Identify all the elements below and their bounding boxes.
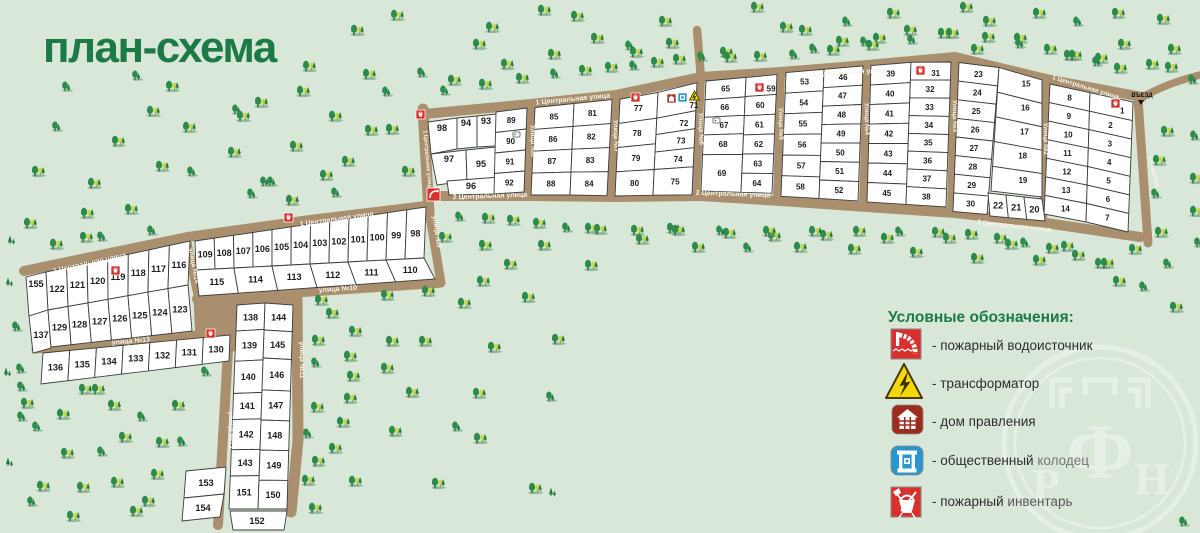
svg-text:48: 48: [837, 111, 846, 120]
svg-text:58: 58: [796, 183, 805, 192]
svg-text:37: 37: [922, 175, 931, 184]
svg-text:45: 45: [882, 189, 891, 198]
svg-text:73: 73: [677, 137, 686, 146]
svg-text:14: 14: [1061, 205, 1070, 214]
svg-text:155: 155: [28, 279, 43, 289]
svg-text:2: 2: [1108, 121, 1113, 130]
svg-text:152: 152: [249, 516, 264, 526]
svg-text:147: 147: [268, 401, 283, 411]
svg-text:99: 99: [391, 231, 401, 241]
svg-text:51: 51: [835, 167, 844, 176]
svg-text:69: 69: [717, 169, 726, 178]
svg-text:142: 142: [239, 430, 254, 440]
svg-text:129: 129: [52, 322, 67, 332]
svg-text:103: 103: [312, 238, 327, 248]
svg-text:121: 121: [70, 280, 85, 290]
svg-text:план-схема: план-схема: [43, 23, 278, 72]
svg-text:3: 3: [1108, 140, 1113, 149]
svg-text:123: 123: [172, 305, 187, 315]
svg-text:54: 54: [799, 98, 808, 107]
svg-text:Улица №8: Улица №8: [528, 125, 536, 158]
svg-text:137: 137: [33, 330, 48, 340]
svg-text:92: 92: [505, 178, 514, 187]
svg-text:улица №11: улица №11: [298, 342, 305, 379]
svg-text:104: 104: [293, 240, 308, 250]
svg-text:150: 150: [265, 490, 280, 500]
svg-text:61: 61: [755, 121, 764, 130]
svg-text:67: 67: [720, 121, 729, 130]
svg-text:- пожарный инвентарь: - пожарный инвентарь: [932, 494, 1072, 509]
svg-text:41: 41: [885, 110, 894, 119]
svg-text:улица №12: улица №12: [227, 411, 234, 448]
svg-text:Н: Н: [1134, 453, 1170, 504]
svg-text:29: 29: [967, 181, 976, 190]
svg-text:77: 77: [634, 104, 643, 113]
svg-text:111: 111: [364, 267, 378, 277]
svg-text:66: 66: [720, 103, 729, 112]
svg-text:ВЪЕЗД: ВЪЕЗД: [1131, 93, 1153, 99]
svg-text:15: 15: [1022, 80, 1031, 89]
svg-text:122: 122: [49, 284, 64, 294]
svg-text:97: 97: [444, 154, 454, 164]
svg-text:34: 34: [924, 121, 933, 130]
svg-text:55: 55: [798, 119, 807, 128]
svg-text:139: 139: [242, 341, 257, 351]
svg-text:4: 4: [1107, 158, 1112, 167]
svg-text:100: 100: [370, 232, 385, 242]
svg-text:117: 117: [151, 264, 166, 274]
svg-text:149: 149: [266, 461, 281, 471]
svg-text:106: 106: [255, 244, 270, 254]
svg-text:125: 125: [132, 311, 147, 321]
svg-text:Улица №6: Улица №6: [696, 113, 704, 146]
svg-text:114: 114: [248, 275, 264, 285]
svg-text:140: 140: [241, 372, 256, 382]
svg-text:133: 133: [128, 354, 143, 364]
svg-text:90: 90: [506, 137, 515, 146]
svg-text:21: 21: [1011, 203, 1021, 213]
svg-text:65: 65: [721, 85, 730, 94]
svg-text:7: 7: [1105, 214, 1110, 223]
svg-text:28: 28: [968, 163, 977, 172]
svg-text:82: 82: [587, 133, 596, 142]
svg-text:132: 132: [155, 351, 170, 361]
svg-text:52: 52: [834, 186, 843, 195]
svg-text:81: 81: [588, 109, 597, 118]
svg-text:6: 6: [1106, 195, 1111, 204]
svg-text:151: 151: [237, 488, 252, 498]
svg-text:17: 17: [1020, 128, 1029, 137]
svg-text:- пожарный водоисточник: - пожарный водоисточник: [932, 338, 1093, 353]
svg-text:24: 24: [973, 89, 982, 98]
svg-text:113: 113: [287, 272, 302, 282]
svg-text:138: 138: [243, 312, 258, 322]
svg-text:88: 88: [547, 180, 556, 189]
svg-text:72: 72: [679, 119, 688, 128]
svg-text:134: 134: [101, 356, 117, 366]
svg-text:13: 13: [1062, 186, 1071, 195]
svg-text:12: 12: [1062, 168, 1071, 177]
svg-text:60: 60: [756, 101, 765, 110]
svg-text:Ф: Ф: [1067, 408, 1134, 495]
svg-text:136: 136: [48, 362, 63, 372]
svg-text:49: 49: [837, 129, 846, 138]
svg-text:102: 102: [331, 236, 346, 246]
svg-text:108: 108: [217, 248, 232, 258]
svg-text:Улица №2: Улица №2: [1042, 123, 1050, 156]
svg-text:- трансформатор: - трансформатор: [932, 376, 1039, 391]
svg-text:Улица №3: Улица №3: [951, 100, 959, 133]
svg-text:38: 38: [922, 193, 931, 202]
svg-text:130: 130: [208, 345, 223, 355]
svg-text:101: 101: [351, 234, 366, 244]
svg-text:87: 87: [548, 157, 557, 166]
svg-text:146: 146: [269, 370, 284, 380]
svg-text:84: 84: [585, 179, 594, 188]
svg-text:153: 153: [198, 478, 213, 488]
svg-text:25: 25: [972, 107, 981, 116]
svg-text:115: 115: [209, 277, 224, 287]
svg-text:43: 43: [884, 149, 893, 158]
svg-text:96: 96: [466, 181, 476, 191]
svg-text:94: 94: [461, 118, 472, 128]
svg-text:- дом правления: - дом правления: [932, 414, 1036, 429]
svg-text:Улица №5: Улица №5: [777, 108, 785, 141]
svg-text:95: 95: [476, 159, 486, 169]
svg-text:93: 93: [481, 116, 491, 126]
svg-text:98: 98: [437, 123, 447, 133]
svg-text:44: 44: [883, 169, 892, 178]
svg-text:74: 74: [674, 155, 683, 164]
svg-text:50: 50: [836, 148, 845, 157]
svg-text:78: 78: [633, 129, 642, 138]
svg-text:8: 8: [1067, 93, 1072, 102]
svg-text:40: 40: [886, 90, 895, 99]
svg-text:27: 27: [969, 144, 978, 153]
svg-text:112: 112: [325, 270, 340, 280]
svg-text:10: 10: [1064, 131, 1073, 140]
svg-text:Улица №7: Улица №7: [611, 120, 619, 153]
svg-text:5: 5: [1106, 177, 1111, 186]
svg-text:110: 110: [403, 265, 418, 275]
svg-text:Улица №4: Улица №4: [863, 103, 871, 136]
svg-text:109: 109: [198, 250, 213, 260]
svg-text:20: 20: [1029, 204, 1039, 214]
svg-text:127: 127: [92, 316, 107, 326]
svg-text:16: 16: [1021, 104, 1030, 113]
svg-text:91: 91: [505, 158, 514, 167]
svg-text:22: 22: [993, 201, 1003, 211]
svg-text:105: 105: [274, 242, 289, 252]
svg-text:42: 42: [884, 129, 893, 138]
svg-text:53: 53: [800, 77, 809, 86]
svg-text:9: 9: [1067, 112, 1072, 121]
svg-text:26: 26: [971, 126, 980, 135]
svg-text:80: 80: [630, 179, 639, 188]
svg-text:33: 33: [925, 103, 934, 112]
svg-text:79: 79: [631, 154, 640, 163]
svg-text:131: 131: [182, 348, 197, 358]
svg-text:31: 31: [931, 69, 940, 78]
svg-text:36: 36: [923, 157, 932, 166]
svg-text:145: 145: [270, 340, 285, 350]
svg-text:154: 154: [195, 503, 211, 513]
svg-text:32: 32: [926, 85, 935, 94]
svg-text:47: 47: [838, 92, 847, 101]
svg-text:59: 59: [767, 85, 776, 94]
svg-text:148: 148: [267, 431, 282, 441]
svg-text:120: 120: [90, 276, 105, 286]
svg-text:56: 56: [798, 141, 807, 150]
svg-text:19: 19: [1018, 176, 1027, 185]
svg-text:85: 85: [550, 113, 559, 122]
svg-text:57: 57: [797, 162, 806, 171]
svg-text:- общественный колодец: - общественный колодец: [932, 453, 1089, 468]
svg-text:71: 71: [689, 101, 698, 110]
svg-text:23: 23: [974, 70, 983, 79]
svg-text:Условные обозначения:: Условные обозначения:: [888, 309, 1074, 326]
svg-text:107: 107: [236, 246, 251, 256]
svg-text:143: 143: [238, 458, 253, 468]
svg-text:89: 89: [507, 116, 516, 125]
svg-text:135: 135: [75, 359, 90, 369]
svg-text:128: 128: [72, 319, 87, 329]
svg-text:68: 68: [719, 140, 728, 149]
svg-text:116: 116: [171, 260, 186, 270]
svg-text:39: 39: [886, 70, 895, 79]
svg-text:30: 30: [966, 200, 975, 209]
svg-text:63: 63: [753, 159, 762, 168]
svg-text:35: 35: [924, 139, 933, 148]
svg-text:144: 144: [271, 313, 286, 323]
svg-text:118: 118: [131, 268, 146, 278]
svg-text:62: 62: [754, 140, 763, 149]
svg-text:124: 124: [152, 308, 168, 318]
svg-text:98: 98: [410, 229, 420, 239]
svg-text:1: 1: [1120, 106, 1125, 115]
svg-text:75: 75: [671, 177, 680, 186]
svg-text:18: 18: [1018, 152, 1027, 161]
svg-text:11: 11: [1063, 149, 1072, 158]
svg-text:86: 86: [549, 135, 558, 144]
svg-text:141: 141: [240, 401, 255, 411]
svg-text:126: 126: [112, 314, 127, 324]
svg-text:64: 64: [752, 179, 761, 188]
svg-text:83: 83: [586, 156, 595, 165]
